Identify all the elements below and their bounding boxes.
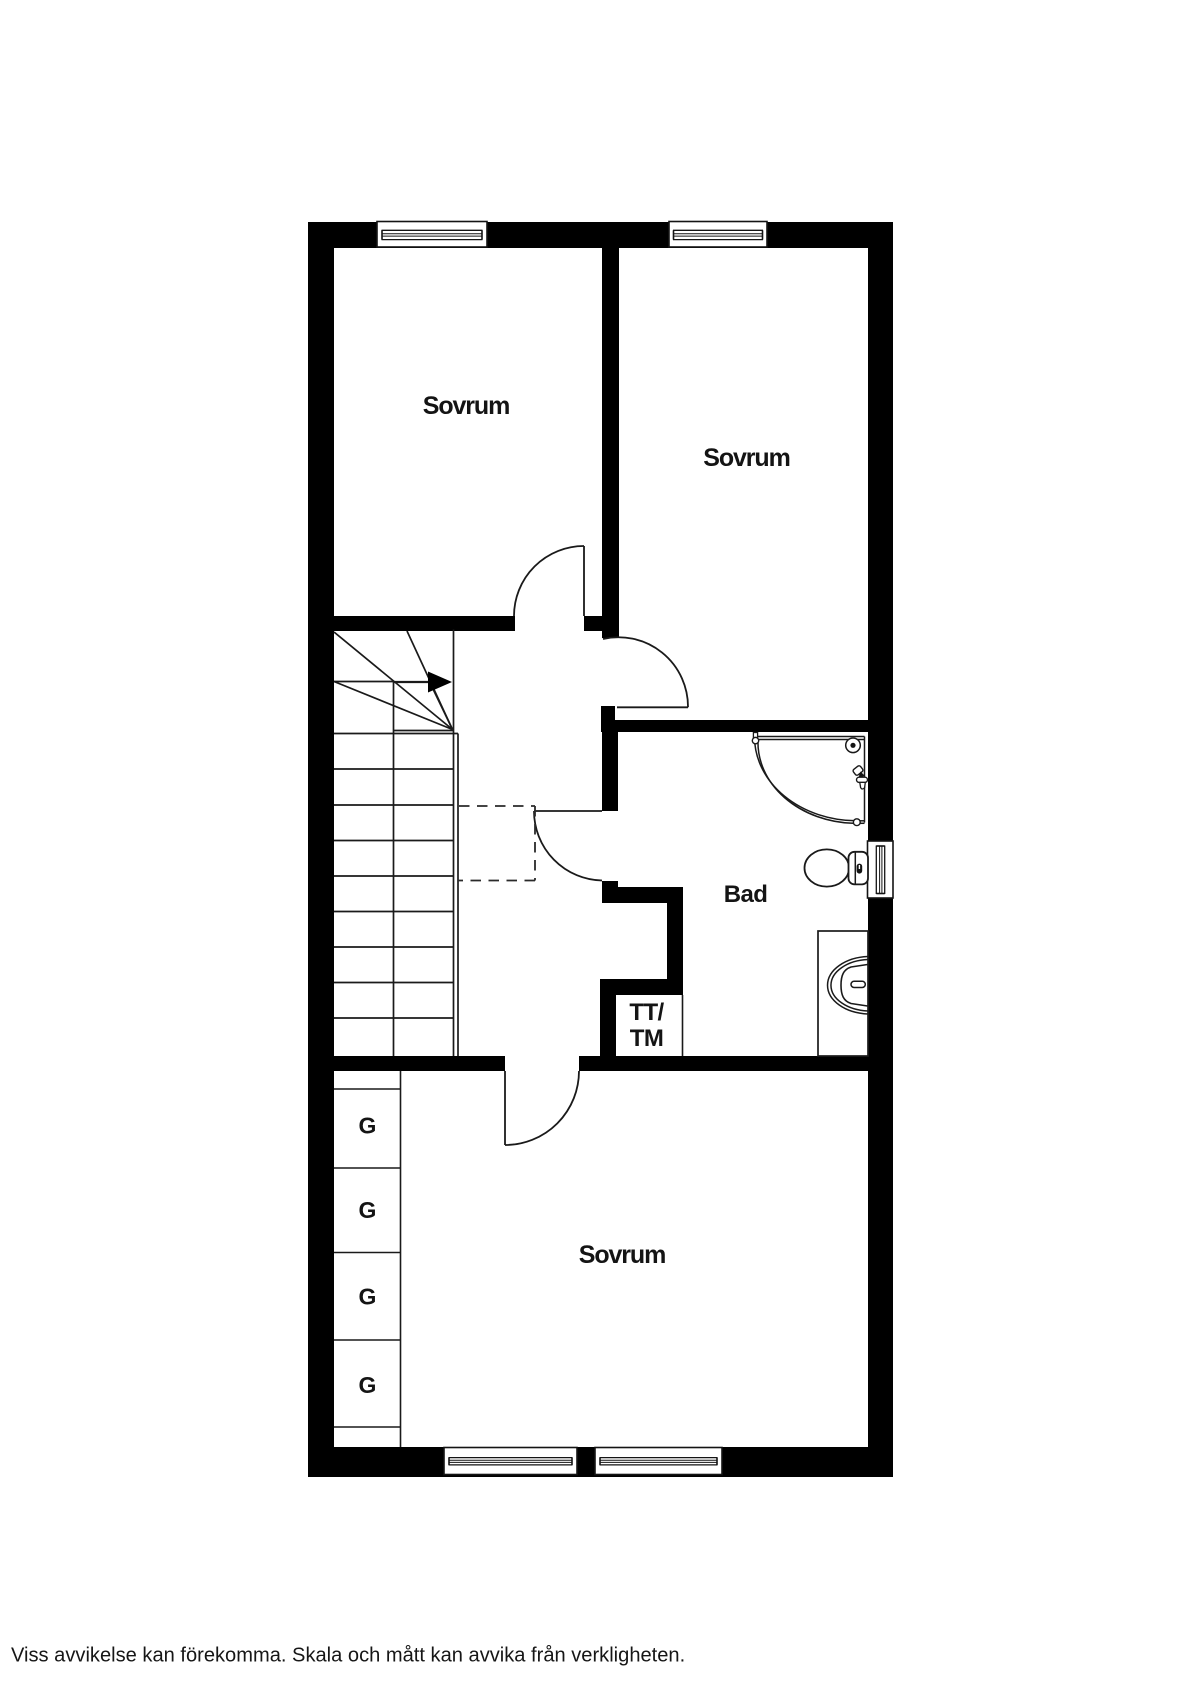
svg-text:G: G — [359, 1284, 377, 1310]
svg-text:G: G — [359, 1113, 377, 1139]
svg-text:Bad: Bad — [724, 881, 768, 908]
svg-text:Sovrum: Sovrum — [579, 1241, 665, 1269]
svg-text:Sovrum: Sovrum — [423, 392, 509, 420]
svg-text:Sovrum: Sovrum — [703, 444, 789, 472]
svg-text:TM: TM — [630, 1025, 663, 1052]
svg-text:G: G — [359, 1197, 377, 1223]
svg-text:Viss avvikelse kan förekomma.: Viss avvikelse kan förekomma. Skala och … — [11, 1645, 685, 1667]
svg-text:TT/: TT/ — [629, 999, 664, 1026]
svg-text:G: G — [359, 1372, 377, 1398]
